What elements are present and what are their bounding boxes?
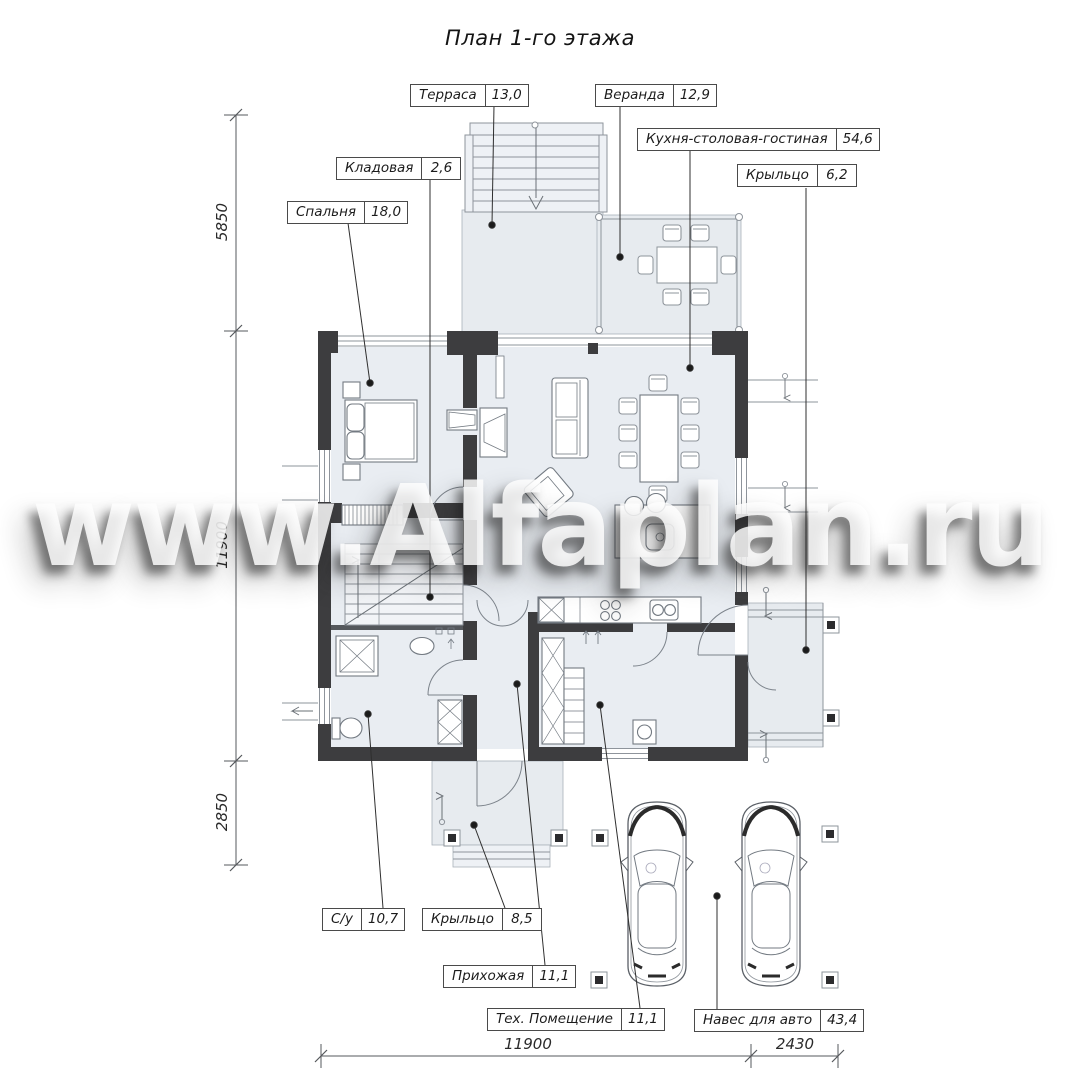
room-fills: [331, 210, 823, 867]
laundry-cabinet-icon: [438, 700, 462, 744]
room-label-kitchen-living: Кухня-столовая-гостиная 54,6: [637, 128, 880, 151]
room-name: Веранда: [596, 85, 674, 106]
room-label-wc: С/у 10,7: [322, 908, 405, 931]
sofa-icon: [552, 378, 588, 458]
room-name: Спальня: [288, 202, 365, 223]
shower-icon: [336, 636, 378, 676]
room-name: Терраса: [411, 85, 486, 106]
room-area: 18,0: [365, 202, 407, 223]
room-area: 2,6: [422, 158, 460, 179]
room-area: 10,7: [362, 909, 404, 930]
room-label-carport: Навес для авто 43,4: [694, 1009, 864, 1032]
washbasin-icon: [410, 638, 434, 655]
room-name: Крыльцо: [738, 165, 818, 186]
dim-left-2850: 2850: [213, 790, 231, 834]
dim-bottom-2430: 2430: [771, 1035, 819, 1053]
page-title: План 1-го этажа: [445, 26, 635, 50]
room-name: Навес для авто: [695, 1010, 821, 1031]
room-area: 6,2: [818, 165, 856, 186]
room-area: 12,9: [674, 85, 716, 106]
room-label-storage: Кладовая 2,6: [336, 157, 461, 180]
room-label-veranda: Веранда 12,9: [595, 84, 717, 107]
floor-plan-page: План 1-го этажа Терраса 13,0 Веранда 12,…: [0, 0, 1080, 1080]
room-area: 13,0: [486, 85, 528, 106]
terrace-stairs: [465, 122, 607, 212]
dim-bottom-11900: 11900: [500, 1035, 556, 1053]
room-label-bedroom: Спальня 18,0: [287, 201, 408, 224]
shelving-icon: [564, 668, 584, 744]
dim-left-5850: 5850: [213, 200, 231, 244]
room-area: 43,4: [821, 1010, 863, 1031]
room-name: С/у: [323, 909, 362, 930]
room-name: Кухня-столовая-гостиная: [638, 129, 837, 150]
room-area: 8,5: [503, 909, 541, 930]
room-name: Кладовая: [337, 158, 422, 179]
room-label-porch-bottom: Крыльцо 8,5: [422, 908, 542, 931]
room-label-tech-room: Тех. Помещение 11,1: [487, 1008, 665, 1031]
room-label-hallway: Прихожая 11,1: [443, 965, 576, 988]
room-label-porch-right: Крыльцо 6,2: [737, 164, 857, 187]
tall-cabinet-icon: [542, 638, 564, 744]
room-area: 11,1: [622, 1009, 664, 1030]
room-name: Крыльцо: [423, 909, 503, 930]
wardrobe-icon: [342, 505, 403, 525]
room-name: Тех. Помещение: [488, 1009, 622, 1030]
kitchen-counter-icon: [538, 597, 701, 623]
room-area: 54,6: [837, 129, 879, 150]
room-area: 11,1: [533, 966, 575, 987]
bed-icon: [345, 400, 417, 462]
toilet-icon: [332, 718, 362, 739]
interior-stairs: [345, 544, 463, 625]
nightstand-icon: [343, 382, 360, 398]
room-name: Прихожая: [444, 966, 533, 987]
nightstand-icon: [343, 464, 360, 480]
washing-machine-icon: [633, 720, 656, 744]
dim-left-11900: 11900: [213, 519, 231, 571]
room-label-terrace: Терраса 13,0: [410, 84, 529, 107]
